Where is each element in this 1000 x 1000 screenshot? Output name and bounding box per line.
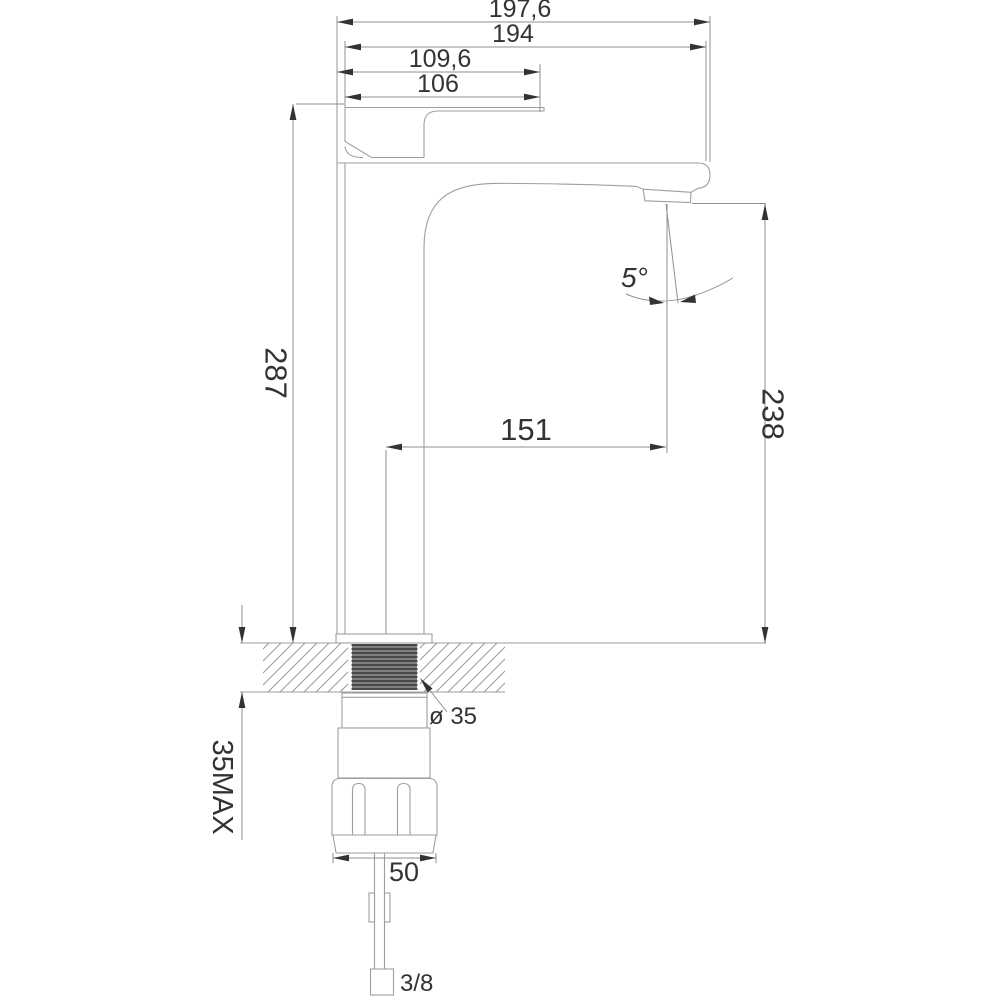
mounting-nut <box>332 779 437 836</box>
dim-angle-5deg: 5° <box>621 204 733 305</box>
threaded-shank <box>352 644 417 690</box>
shank-collar <box>342 693 427 728</box>
spout-top-edge <box>337 163 710 192</box>
base-flange <box>336 634 432 643</box>
dim-label: 35MAX <box>206 739 238 834</box>
thread-size-label: 3/8 <box>400 970 433 997</box>
dim-label: ø 35 <box>429 703 477 730</box>
dim-reach-151: 151 <box>386 412 666 450</box>
hose-connector-left <box>369 893 375 922</box>
dim-spout-height-238: 238 <box>756 204 791 643</box>
dim-label: 106 <box>417 70 459 98</box>
nut-bottom-collar <box>333 835 436 853</box>
dim-height-287: 287 <box>259 104 297 643</box>
nut-body <box>338 728 430 778</box>
dim-label: 287 <box>259 347 294 399</box>
faucet-technical-drawing: 197,6 194 109,6 106 287 <box>0 0 1000 1000</box>
hose-end-fitting <box>371 969 394 995</box>
faucet-handle <box>345 108 544 158</box>
dim-194: 194 <box>345 20 706 50</box>
dim-label: 151 <box>500 412 552 447</box>
dim-label: 109,6 <box>409 45 472 73</box>
spout-underside <box>424 183 643 634</box>
hose-connector-right <box>385 893 391 922</box>
arrow-left <box>337 19 353 26</box>
dimension-annotations: 197,6 194 109,6 106 287 <box>206 0 791 997</box>
faucet-outline <box>337 16 710 634</box>
arrow-right <box>694 19 710 26</box>
aerator <box>643 189 691 202</box>
deck-hatch-right <box>420 644 505 692</box>
mounting-assembly <box>240 634 766 995</box>
angle-tilted-line <box>666 204 678 303</box>
angle-label: 5° <box>621 262 648 293</box>
drawing-sheet: 197,6 194 109,6 106 287 <box>0 0 1000 1000</box>
dim-deck-thickness: 35MAX <box>206 605 245 840</box>
deck-hatch-left <box>263 644 348 692</box>
dim-106: 106 <box>345 70 540 100</box>
dim-label: 238 <box>756 388 791 440</box>
dim-label: 50 <box>389 857 419 887</box>
dim-label: 194 <box>492 20 534 48</box>
